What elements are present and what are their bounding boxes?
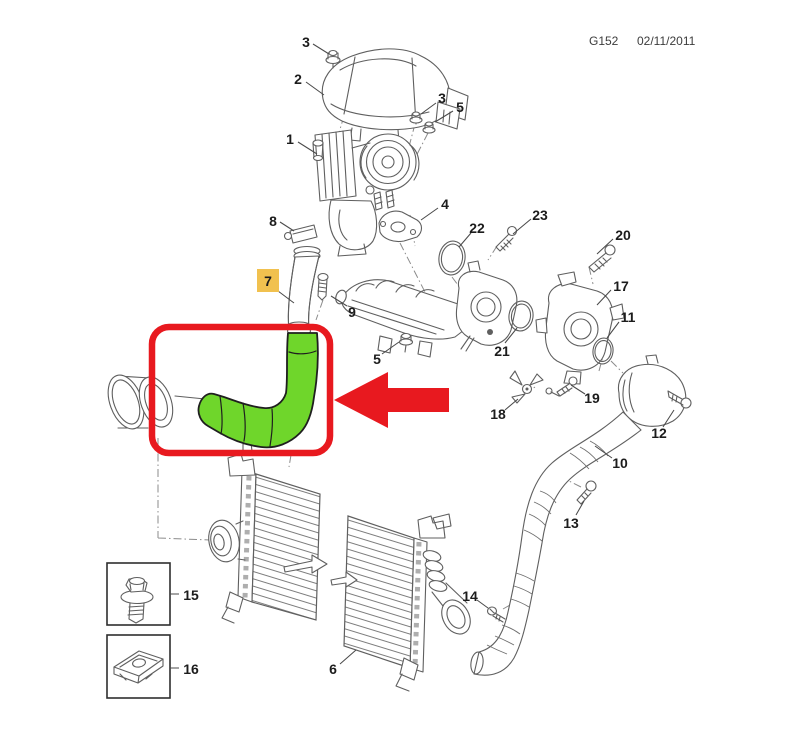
highlight-arrow [334, 372, 449, 428]
charge-hose-10 [470, 412, 641, 675]
callout-10: 10 [612, 455, 628, 471]
callout-3-top: 3 [302, 34, 310, 50]
callout-18: 18 [490, 406, 506, 422]
callout-2: 2 [294, 71, 302, 87]
callout-12: 12 [651, 425, 667, 441]
stud-9 [318, 274, 328, 301]
callout-3b: 3 [438, 90, 446, 106]
heat-shield [322, 49, 468, 142]
highlighted-hose-7 [198, 333, 317, 447]
callout-16: 16 [183, 661, 199, 677]
callout-17: 17 [613, 278, 629, 294]
legend [107, 563, 170, 698]
callout-4: 4 [441, 196, 449, 212]
callout-20: 20 [615, 227, 631, 243]
callout-22: 22 [469, 220, 485, 236]
throttle-body-17 [536, 272, 624, 384]
callout-13: 13 [563, 515, 579, 531]
intercooler-right [344, 514, 476, 691]
intercoolers [205, 443, 476, 691]
drawing-code: G152 [589, 34, 619, 48]
callout-15: 15 [183, 587, 199, 603]
seal-22 [437, 239, 467, 276]
screw-14 [488, 607, 506, 622]
callout-5b: 5 [456, 99, 464, 115]
callout-6: 6 [329, 661, 337, 677]
callout-1: 1 [286, 131, 294, 147]
callout-5-mid: 5 [373, 351, 381, 367]
throttle-body-21 [456, 261, 516, 351]
nut-5-mid [400, 334, 413, 353]
bolt-13 [577, 481, 596, 504]
callout-7: 7 [264, 273, 272, 289]
highlight-label-7: 7 [257, 269, 279, 292]
callout-21: 21 [494, 343, 510, 359]
bolt-23 [496, 227, 517, 252]
intercooler-left [205, 443, 320, 623]
callout-8: 8 [269, 213, 277, 229]
callout-19: 19 [584, 390, 600, 406]
parts-diagram-page: G152 02/11/2011 [0, 0, 804, 731]
exploded-parts-diagram: G152 02/11/2011 [0, 0, 804, 731]
gasket-4 [379, 211, 422, 241]
callout-11: 11 [621, 309, 636, 325]
callout-23: 23 [532, 207, 548, 223]
hose-elbow [618, 355, 685, 426]
turbo-downpipe [288, 247, 321, 336]
callout-9: 9 [348, 304, 356, 320]
callout-14: 14 [462, 588, 478, 604]
drawing-date: 02/11/2011 [637, 34, 696, 48]
hose-7-body [198, 333, 317, 447]
